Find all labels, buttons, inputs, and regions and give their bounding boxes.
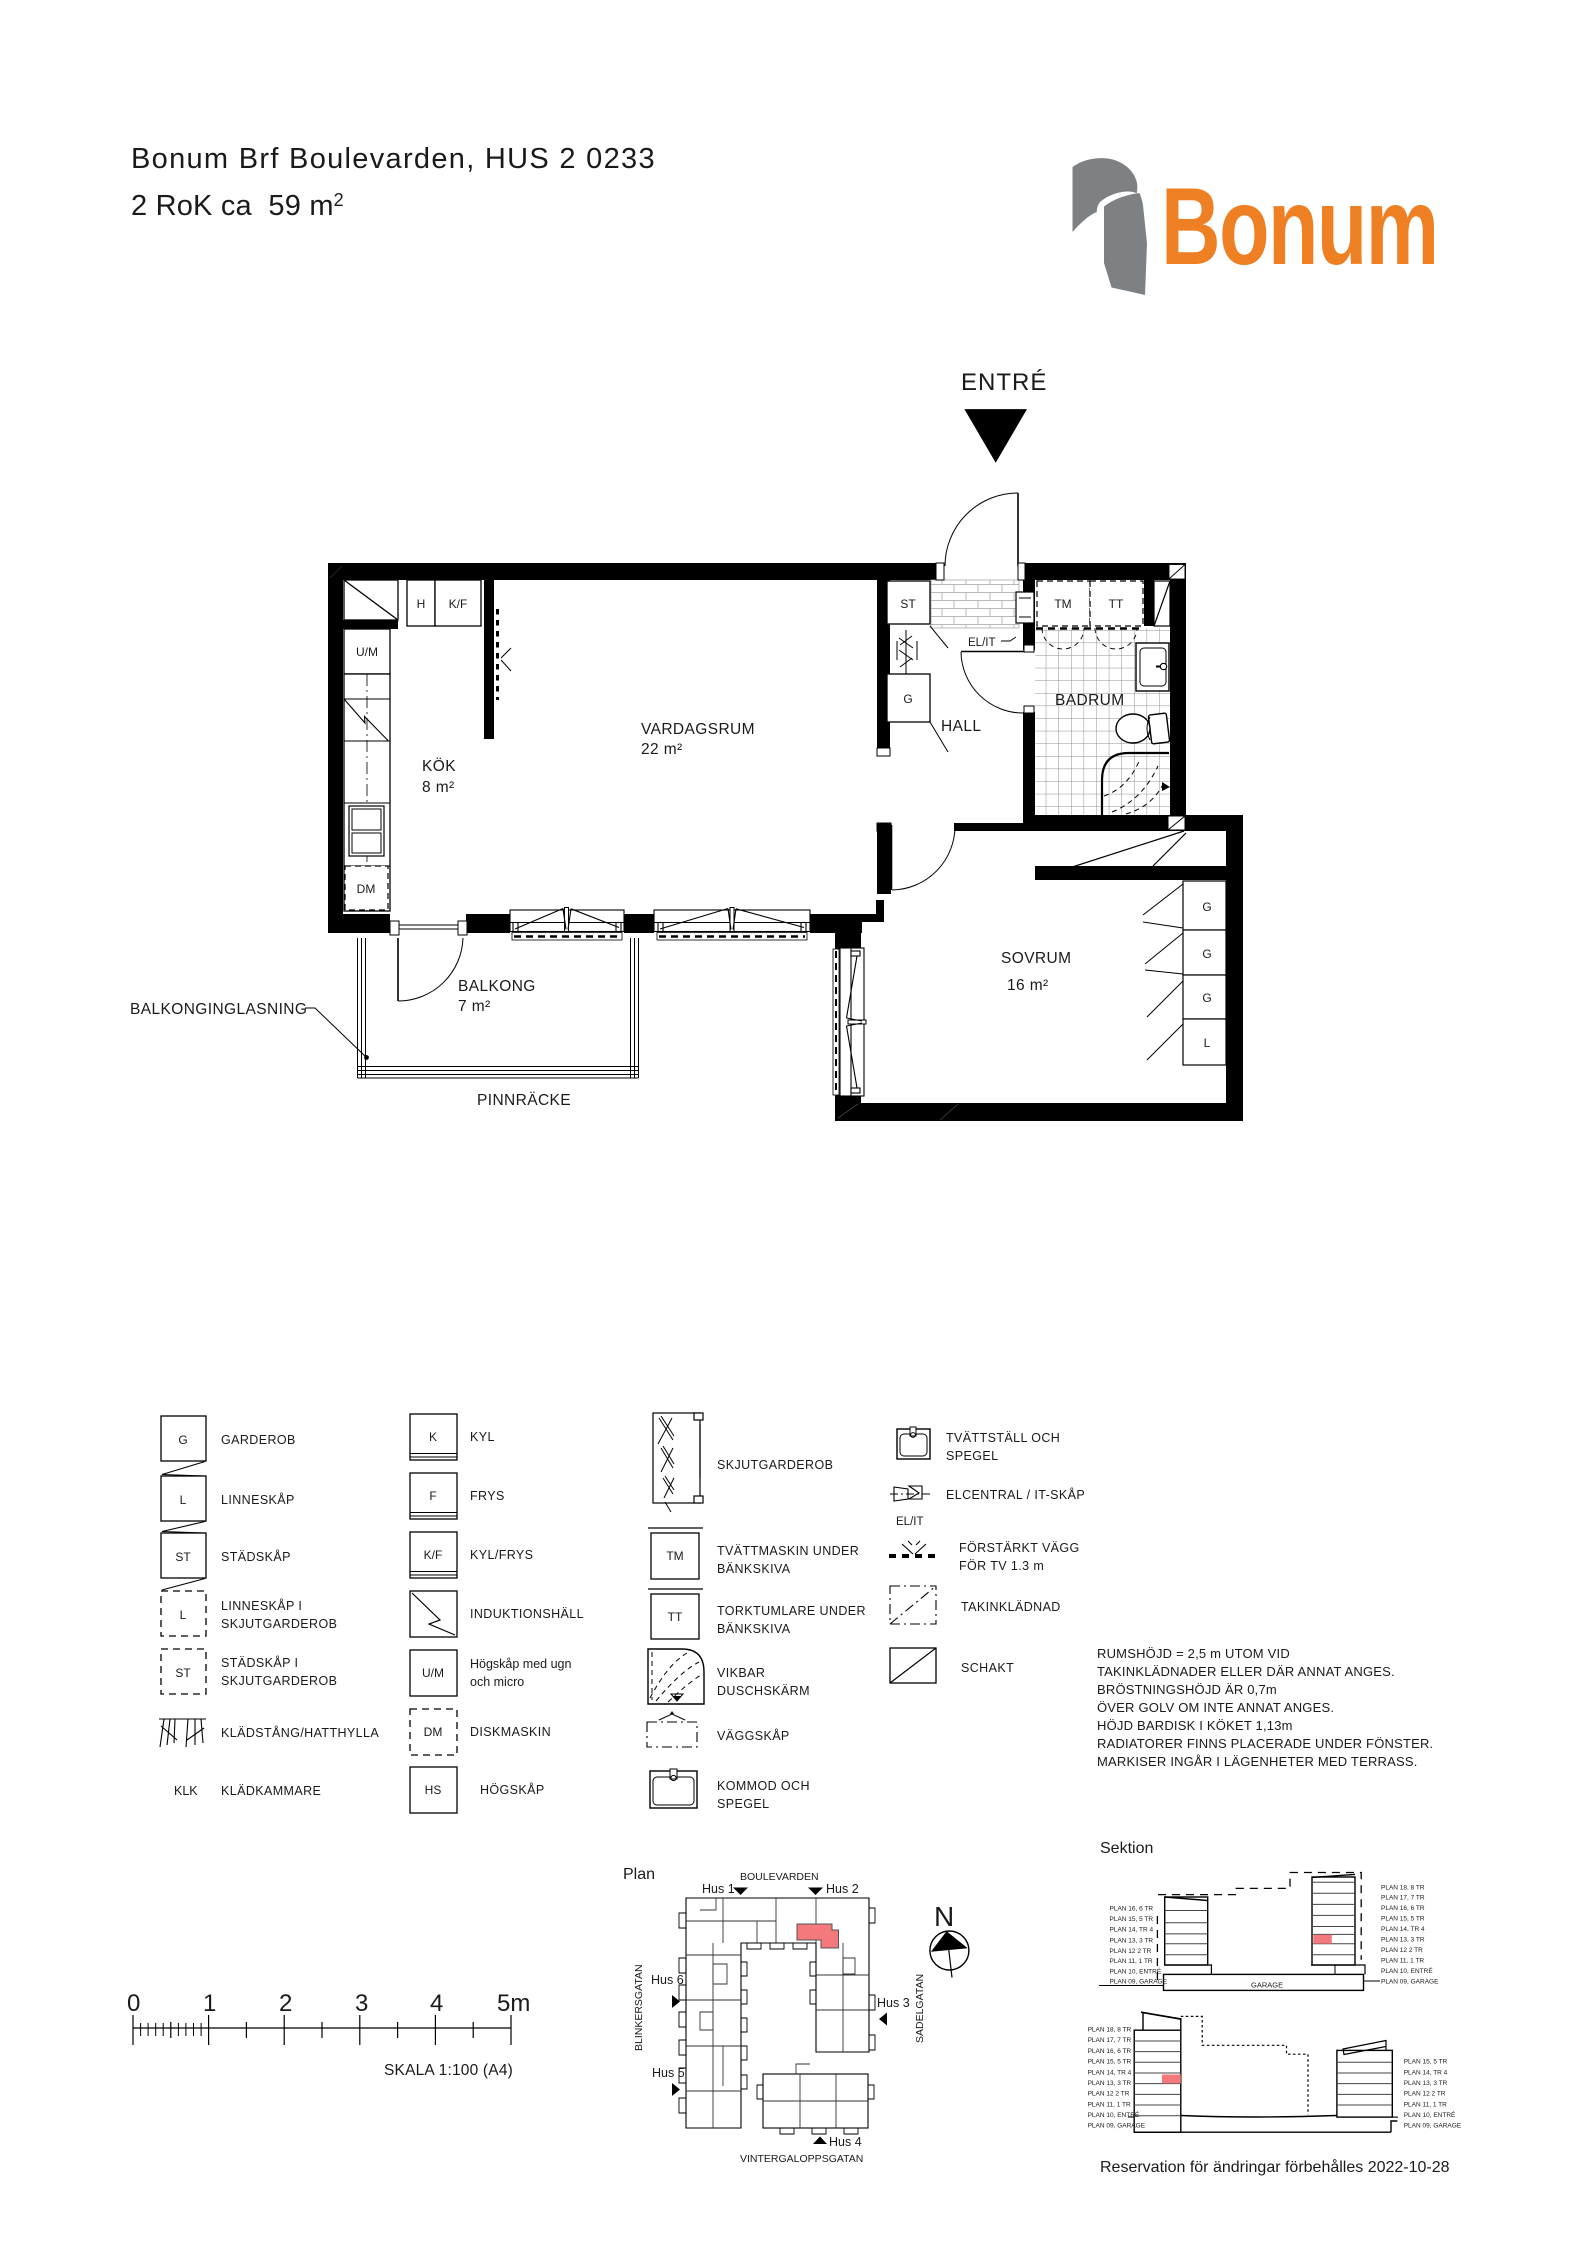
svg-text:PLAN 11, 1 TR: PLAN 11, 1 TR — [1381, 1958, 1424, 1965]
svg-text:L: L — [180, 1608, 187, 1622]
svg-text:PLAN 09, GARAGE: PLAN 09, GARAGE — [1381, 1979, 1439, 1986]
svg-text:EL/IT: EL/IT — [896, 1516, 923, 1528]
svg-text:0: 0 — [127, 1990, 140, 2017]
svg-text:Bonum Brf Boulevarden, HUS 2 0: Bonum Brf Boulevarden, HUS 2 0233 — [131, 143, 656, 175]
svg-text:KLÄDKAMMARE: KLÄDKAMMARE — [221, 1784, 321, 1798]
svg-text:GARDEROB: GARDEROB — [221, 1433, 296, 1447]
svg-text:EL/IT: EL/IT — [968, 637, 995, 649]
svg-text:ELCENTRAL / IT-SKÅP: ELCENTRAL / IT-SKÅP — [946, 1487, 1085, 1502]
svg-text:G: G — [1202, 947, 1211, 961]
svg-text:KYL/FRYS: KYL/FRYS — [470, 1548, 533, 1562]
svg-text:FRYS: FRYS — [470, 1489, 505, 1503]
svg-text:PLAN 17, 7 TR: PLAN 17, 7 TR — [1381, 1894, 1425, 1901]
svg-text:16 m²: 16 m² — [1007, 977, 1049, 994]
svg-text:PLAN 12 2 TR: PLAN 12 2 TR — [1110, 1948, 1152, 1955]
svg-text:Plan: Plan — [623, 1866, 655, 1883]
svg-text:PLAN 14, TR 4: PLAN 14, TR 4 — [1381, 1926, 1425, 1933]
svg-text:VÄGGSKÅP: VÄGGSKÅP — [717, 1728, 790, 1743]
svg-text:U/M: U/M — [422, 1666, 444, 1680]
svg-text:VIKBAR: VIKBAR — [717, 1666, 765, 1680]
svg-text:FÖRSTÄRKT VÄGG: FÖRSTÄRKT VÄGG — [959, 1541, 1080, 1555]
svg-text:U/M: U/M — [356, 645, 378, 659]
svg-text:G: G — [1202, 991, 1211, 1005]
svg-text:DUSCHSKÄRM: DUSCHSKÄRM — [717, 1684, 810, 1698]
svg-text:DISKMASKIN: DISKMASKIN — [470, 1725, 551, 1739]
svg-text:Hus 1: Hus 1 — [702, 1882, 735, 1896]
svg-text:F: F — [429, 1489, 436, 1503]
svg-text:PLAN 15, 5 TR: PLAN 15, 5 TR — [1381, 1915, 1425, 1922]
svg-text:8 m²: 8 m² — [422, 779, 455, 796]
svg-text:K: K — [429, 1430, 437, 1444]
svg-text:Reservation för ändringar förb: Reservation för ändringar förbehålles 20… — [1100, 2158, 1450, 2176]
svg-text:KLK: KLK — [174, 1784, 198, 1798]
svg-text:HS: HS — [425, 1783, 442, 1797]
svg-text:SADELGATAN: SADELGATAN — [914, 1974, 926, 2043]
svg-text:ÖVER GOLV OM INTE ANNAT ANGES.: ÖVER GOLV OM INTE ANNAT ANGES. — [1097, 1700, 1334, 1715]
svg-text:PLAN 17, 7 TR: PLAN 17, 7 TR — [1088, 2037, 1132, 2044]
svg-text:PLAN 14, TR 4: PLAN 14, TR 4 — [1110, 1927, 1154, 1934]
svg-text:Sektion: Sektion — [1100, 1840, 1153, 1857]
svg-text:PLAN 15, 5 TR: PLAN 15, 5 TR — [1088, 2059, 1132, 2066]
svg-text:STÄDSKÅP I: STÄDSKÅP I — [221, 1655, 298, 1670]
svg-text:PLAN 13, 3 TR: PLAN 13, 3 TR — [1381, 1937, 1425, 1944]
svg-text:TM: TM — [1054, 597, 1071, 611]
svg-text:Hus 6: Hus 6 — [651, 1973, 684, 1987]
svg-text:PLAN 15, 5 TR: PLAN 15, 5 TR — [1404, 2059, 1448, 2066]
svg-text:2: 2 — [279, 1990, 292, 2017]
svg-text:PLAN 16, 6 TR: PLAN 16, 6 TR — [1381, 1905, 1425, 1912]
svg-text:PLAN 14, TR 4: PLAN 14, TR 4 — [1404, 2069, 1448, 2076]
svg-text:LINNESKÅP I: LINNESKÅP I — [221, 1598, 302, 1613]
svg-text:BRÖSTNINGSHÖJD ÄR 0,7m: BRÖSTNINGSHÖJD ÄR 0,7m — [1097, 1682, 1277, 1697]
svg-text:K/F: K/F — [424, 1548, 443, 1562]
svg-text:RUMSHÖJD = 2,5 m UTOM VID: RUMSHÖJD = 2,5 m UTOM VID — [1097, 1646, 1290, 1661]
svg-text:ST: ST — [175, 1550, 191, 1564]
svg-text:KÖK: KÖK — [422, 757, 456, 775]
svg-text:PLAN 13, 3 TR: PLAN 13, 3 TR — [1088, 2080, 1132, 2087]
svg-text:Hus 5: Hus 5 — [652, 2066, 685, 2080]
svg-text:TVÄTTSTÄLL OCH: TVÄTTSTÄLL OCH — [946, 1431, 1060, 1445]
svg-text:3: 3 — [355, 1990, 368, 2017]
svg-text:ENTRÉ: ENTRÉ — [961, 369, 1047, 396]
svg-text:SKJUTGARDEROB: SKJUTGARDEROB — [717, 1458, 833, 1472]
svg-text:PLAN 11, 1 TR: PLAN 11, 1 TR — [1110, 1958, 1153, 1965]
svg-text:PLAN 15, 5 TR: PLAN 15, 5 TR — [1110, 1916, 1154, 1923]
svg-text:TT: TT — [668, 1610, 683, 1624]
svg-text:VINTERGALOPPSGATAN: VINTERGALOPPSGATAN — [740, 2153, 863, 2165]
svg-text:PLAN 13, 3 TR: PLAN 13, 3 TR — [1110, 1937, 1154, 1944]
svg-text:SKJUTGARDEROB: SKJUTGARDEROB — [221, 1674, 337, 1688]
svg-text:GARAGE: GARAGE — [1251, 1981, 1283, 1990]
svg-text:HÖJD BARDISK I KÖKET 1,13m: HÖJD BARDISK I KÖKET 1,13m — [1097, 1718, 1293, 1733]
svg-text:Hus 3: Hus 3 — [877, 1996, 910, 2010]
svg-text:H: H — [417, 597, 426, 611]
svg-text:L: L — [1204, 1036, 1211, 1050]
svg-text:G: G — [178, 1433, 187, 1447]
svg-text:PLAN 18, 8 TR: PLAN 18, 8 TR — [1381, 1885, 1425, 1892]
svg-text:PLAN 12 2 TR: PLAN 12 2 TR — [1404, 2091, 1446, 2098]
svg-text:PLAN 09, GARAGE: PLAN 09, GARAGE — [1404, 2123, 1462, 2130]
svg-text:STÄDSKÅP: STÄDSKÅP — [221, 1549, 291, 1564]
svg-text:DM: DM — [424, 1725, 443, 1739]
svg-text:FÖR TV 1.3 m: FÖR TV 1.3 m — [959, 1559, 1044, 1573]
svg-text:N: N — [934, 1901, 954, 1932]
svg-text:BALKONG: BALKONG — [458, 978, 536, 995]
svg-text:BÄNKSKIVA: BÄNKSKIVA — [717, 1562, 791, 1576]
svg-text:Hus 2: Hus 2 — [826, 1882, 859, 1896]
svg-text:PLAN 11, 1 TR: PLAN 11, 1 TR — [1404, 2101, 1447, 2108]
svg-text:KYL: KYL — [470, 1430, 495, 1444]
svg-text:PLAN 16, 6 TR: PLAN 16, 6 TR — [1110, 1905, 1154, 1912]
svg-text:PLAN 09, GARAGE: PLAN 09, GARAGE — [1088, 2123, 1146, 2130]
svg-text:TT: TT — [1109, 597, 1124, 611]
svg-text:TORKTUMLARE UNDER: TORKTUMLARE UNDER — [717, 1604, 866, 1618]
svg-text:TVÄTTMASKIN UNDER: TVÄTTMASKIN UNDER — [717, 1544, 859, 1558]
svg-text:PLAN 12 2 TR: PLAN 12 2 TR — [1381, 1947, 1423, 1954]
svg-text:BLINKERSGATAN: BLINKERSGATAN — [633, 1964, 645, 2051]
svg-text:22 m²: 22 m² — [641, 741, 683, 758]
svg-text:MARKISER INGÅR I LÄGENHETER ME: MARKISER INGÅR I LÄGENHETER MED TERRASS. — [1097, 1754, 1418, 1769]
svg-text:ST: ST — [175, 1666, 191, 1680]
svg-text:ST: ST — [900, 597, 916, 611]
svg-text:BOULEVARDEN: BOULEVARDEN — [740, 1871, 819, 1883]
svg-text:4: 4 — [430, 1990, 443, 2017]
svg-text:2 RoK ca 59 m2: 2 RoK ca 59 m2 — [131, 190, 344, 222]
svg-text:TAKINKLÄDNAD: TAKINKLÄDNAD — [961, 1600, 1061, 1614]
svg-text:PLAN 16, 6 TR: PLAN 16, 6 TR — [1088, 2048, 1132, 2055]
svg-text:LINNESKÅP: LINNESKÅP — [221, 1492, 295, 1507]
svg-text:TM: TM — [666, 1549, 683, 1563]
svg-text:PLAN 10, ENTRÉ: PLAN 10, ENTRÉ — [1088, 2110, 1140, 2119]
svg-text:SPEGEL: SPEGEL — [946, 1449, 998, 1463]
svg-text:HALL: HALL — [941, 718, 981, 735]
svg-text:SOVRUM: SOVRUM — [1001, 950, 1071, 967]
svg-text:G: G — [1202, 900, 1211, 914]
svg-text:7 m²: 7 m² — [458, 998, 491, 1015]
svg-text:PLAN 18, 8 TR: PLAN 18, 8 TR — [1088, 2027, 1132, 2034]
svg-text:KOMMOD OCH: KOMMOD OCH — [717, 1779, 810, 1793]
svg-text:PLAN 09, GARAGE: PLAN 09, GARAGE — [1110, 1979, 1168, 1986]
svg-text:1: 1 — [203, 1990, 216, 2017]
svg-text:PLAN 13, 3 TR: PLAN 13, 3 TR — [1404, 2080, 1448, 2087]
svg-text:INDUKTIONSHÄLL: INDUKTIONSHÄLL — [470, 1607, 584, 1621]
svg-text:5m: 5m — [497, 1990, 530, 2017]
svg-text:SKJUTGARDEROB: SKJUTGARDEROB — [221, 1617, 337, 1631]
svg-text:Högskåp med ugn: Högskåp med ugn — [470, 1657, 572, 1671]
svg-text:HÖGSKÅP: HÖGSKÅP — [480, 1782, 545, 1797]
svg-text:RADIATORER FINNS PLACERADE UND: RADIATORER FINNS PLACERADE UNDER FÖNSTER… — [1097, 1736, 1433, 1751]
svg-text:BÄNKSKIVA: BÄNKSKIVA — [717, 1622, 791, 1636]
svg-text:PLAN 11, 1 TR: PLAN 11, 1 TR — [1088, 2101, 1131, 2108]
svg-text:Bonum: Bonum — [1161, 164, 1438, 287]
svg-text:PINNRÄCKE: PINNRÄCKE — [477, 1092, 571, 1109]
svg-text:VARDAGSRUM: VARDAGSRUM — [641, 721, 755, 738]
svg-text:PLAN 14, TR 4: PLAN 14, TR 4 — [1088, 2069, 1132, 2076]
svg-text:K/F: K/F — [449, 597, 468, 611]
svg-text:BALKONGINGLASNING: BALKONGINGLASNING — [130, 1001, 307, 1018]
svg-text:PLAN 10, ENTRÉ: PLAN 10, ENTRÉ — [1404, 2110, 1456, 2119]
svg-text:TAKINKLÄDNADER ELLER DÄR ANNAT: TAKINKLÄDNADER ELLER DÄR ANNAT ANGES. — [1097, 1664, 1395, 1679]
svg-text:BADRUM: BADRUM — [1055, 692, 1125, 709]
svg-text:G: G — [903, 692, 912, 706]
svg-text:L: L — [180, 1493, 187, 1507]
svg-text:SPEGEL: SPEGEL — [717, 1797, 769, 1811]
svg-text:PLAN 12 2 TR: PLAN 12 2 TR — [1088, 2091, 1130, 2098]
svg-text:SKALA 1:100 (A4): SKALA 1:100 (A4) — [384, 2062, 513, 2079]
svg-text:PLAN 10, ENTRÉ: PLAN 10, ENTRÉ — [1110, 1967, 1162, 1976]
svg-text:DM: DM — [357, 882, 376, 896]
svg-text:Hus 4: Hus 4 — [829, 2135, 862, 2149]
svg-text:och micro: och micro — [470, 1675, 524, 1689]
svg-text:SCHAKT: SCHAKT — [961, 1661, 1014, 1675]
svg-text:KLÄDSTÅNG/HATTHYLLA: KLÄDSTÅNG/HATTHYLLA — [221, 1725, 379, 1740]
svg-text:PLAN 10, ENTRÉ: PLAN 10, ENTRÉ — [1381, 1966, 1433, 1975]
